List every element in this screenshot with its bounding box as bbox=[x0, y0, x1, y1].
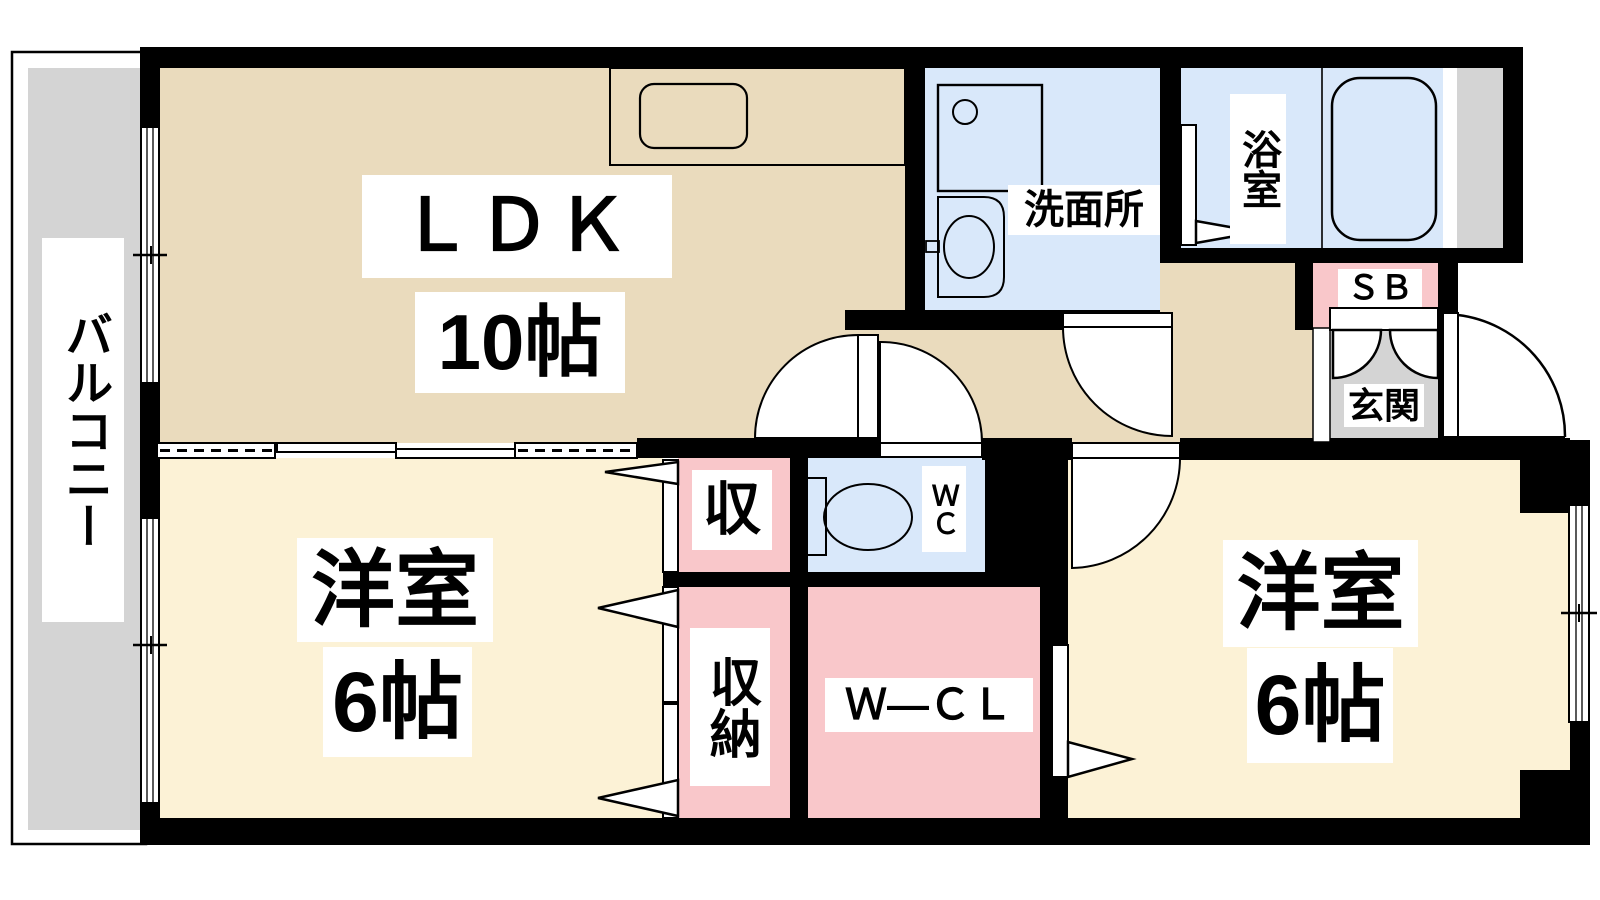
bedroom-left-label: 洋室 bbox=[297, 538, 493, 642]
duct-space-fill bbox=[1457, 68, 1503, 248]
bedroom-right-label: 洋室 bbox=[1223, 540, 1418, 647]
pillar-top-right bbox=[1520, 443, 1575, 513]
front-door bbox=[1443, 313, 1565, 437]
closet-lower-label: 収納 bbox=[690, 628, 770, 786]
room-bathroom-fill bbox=[1181, 67, 1443, 248]
balcony-label-text: バルコニー bbox=[58, 310, 108, 550]
wc-label-text: ＷＣ bbox=[929, 481, 958, 537]
wall-mid-horizontal bbox=[663, 572, 1068, 587]
closet-lower-label-text: 収納 bbox=[703, 655, 758, 759]
ldk-size-label: 10帖 bbox=[415, 292, 625, 393]
wall-wc-right-block bbox=[985, 458, 1068, 572]
floorplan-drawing bbox=[0, 0, 1600, 900]
wc-label: ＷＣ bbox=[922, 466, 966, 552]
balcony-label: バルコニー bbox=[42, 238, 124, 622]
closet-upper-label: 収 bbox=[692, 470, 772, 550]
wall-shoebox-left bbox=[1295, 263, 1313, 330]
wall-top bbox=[140, 47, 1523, 68]
wall-hall-south-b bbox=[982, 438, 1072, 460]
sliding-door-ldk bbox=[157, 443, 637, 458]
wall-hall-south-a bbox=[637, 438, 880, 458]
pillar-bottom-right bbox=[1520, 770, 1575, 818]
shoebox-label: ＳＢ bbox=[1338, 269, 1422, 307]
ldk-label: ＬＤＫ bbox=[362, 175, 672, 278]
wall-bath-bottom bbox=[1160, 248, 1523, 263]
bedroom-right-size-label: 6帖 bbox=[1247, 648, 1393, 763]
bathroom-label: 浴室 bbox=[1230, 94, 1286, 244]
kitchen-sink bbox=[640, 84, 747, 148]
wall-left-seg1 bbox=[140, 47, 160, 127]
wall-ldk-right bbox=[905, 47, 925, 330]
washroom-label: 洗面所 bbox=[1008, 185, 1160, 235]
wall-bedroom-right-top bbox=[1180, 438, 1570, 460]
walk-in-closet-label: Ｗ―ＣＬ bbox=[825, 678, 1033, 732]
kitchen-counter bbox=[610, 68, 905, 165]
entrance-label: 玄関 bbox=[1344, 384, 1424, 427]
wall-right-top bbox=[1503, 47, 1523, 263]
wall-bath-left bbox=[1160, 47, 1181, 263]
wall-bottom bbox=[140, 818, 1590, 845]
floorplan-canvas: バルコニー ＬＤＫ 10帖 洗面所 浴室 ＳＢ 玄関 収 ＷＣ 収納 Ｗ―ＣＬ … bbox=[0, 0, 1600, 900]
wall-closet-wcl-divider bbox=[790, 587, 808, 818]
bedroom-left-size-label: 6帖 bbox=[323, 647, 472, 757]
bathroom-label-text: 浴室 bbox=[1237, 129, 1279, 209]
